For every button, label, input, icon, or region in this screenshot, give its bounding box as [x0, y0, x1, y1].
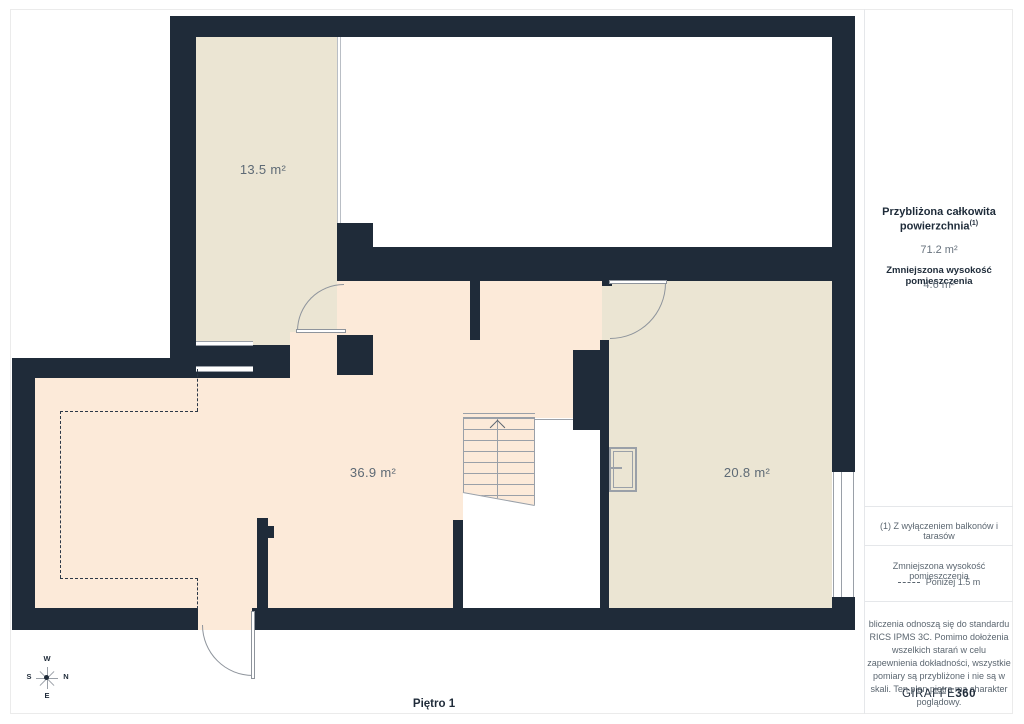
wall-segment [257, 518, 268, 608]
stairs-up-arrow-icon [490, 420, 506, 436]
logo-text: GIRAFFE [902, 688, 955, 700]
sidebar-footnote: (1) Z wyłączeniem balkonów i tarasów [864, 521, 1014, 541]
sidebar-total-area-title: Przybliżona całkowita [864, 206, 1014, 218]
window [196, 366, 253, 372]
wall-segment [832, 16, 855, 472]
sidebar-total-area-title2: powierzchnia(1) [864, 220, 1014, 233]
wall-segment [373, 247, 832, 281]
compass-east: E [40, 691, 54, 700]
sidebar-reduced-height-value: 4.6 m² [864, 279, 1014, 291]
floor-label: Piętro 1 [374, 698, 494, 710]
logo-suffix: 360 [955, 688, 976, 700]
sidebar-divider [864, 506, 1013, 507]
legend-label: Poniżej 1.5 m [926, 577, 981, 587]
window [833, 472, 854, 597]
wall-segment [337, 335, 373, 375]
reduced-height-boundary [60, 578, 198, 579]
wall-segment [12, 358, 196, 378]
wall-segment [453, 520, 463, 630]
floor-plan-page: 13.5 m² 36.9 m² 20.8 m² W N S E Piętro 1… [0, 0, 1024, 724]
room-area-label: 20.8 m² [697, 463, 797, 483]
door-leaf [609, 280, 667, 284]
wall-segment [170, 16, 196, 378]
window-pane-line [841, 472, 842, 597]
giraffe360-logo: GIRAFFE360 [864, 688, 1014, 700]
wall-segment [268, 526, 274, 538]
flue-tick [609, 467, 622, 469]
compass: W N S E [20, 650, 76, 706]
reduced-height-boundary [197, 578, 198, 609]
sidebar-divider [864, 601, 1013, 602]
sidebar-divider [864, 545, 1013, 546]
wall-segment [573, 350, 609, 430]
wall-segment [12, 608, 855, 630]
wall-segment [170, 16, 855, 37]
sidebar-legend-row: Poniżej 1.5 m [864, 577, 1014, 587]
void-space [341, 37, 832, 247]
room-area-label: 36.9 m² [323, 463, 423, 483]
wall-segment [600, 430, 609, 612]
reduced-height-boundary [60, 411, 198, 412]
flue-fixture [609, 447, 637, 492]
compass-center-dot [44, 675, 49, 680]
dashed-line-sample [898, 582, 920, 583]
door-leaf [296, 329, 346, 333]
stairs [463, 418, 535, 505]
stairs-top-rail [463, 413, 535, 418]
wall-segment [12, 358, 35, 630]
doorway-gap-top [290, 332, 337, 378]
wall-segment [337, 223, 373, 281]
compass-north: N [59, 672, 73, 681]
reduced-height-boundary [60, 411, 61, 578]
window [196, 341, 253, 346]
total-area-superscript: (1) [970, 220, 979, 227]
room-area-label: 13.5 m² [213, 160, 313, 180]
partition-line [337, 37, 341, 223]
total-area-word: powierzchnia [900, 221, 970, 233]
sidebar-total-area-value: 71.2 m² [864, 244, 1014, 256]
compass-south: S [22, 672, 36, 681]
compass-west: W [40, 654, 54, 663]
flue-inner [613, 451, 633, 488]
reduced-height-boundary [197, 369, 198, 411]
wall-segment [470, 278, 480, 340]
wall-segment [192, 345, 290, 378]
wall-segment [600, 340, 609, 354]
door-leaf [251, 611, 255, 679]
sidebar-panel [864, 9, 1013, 714]
